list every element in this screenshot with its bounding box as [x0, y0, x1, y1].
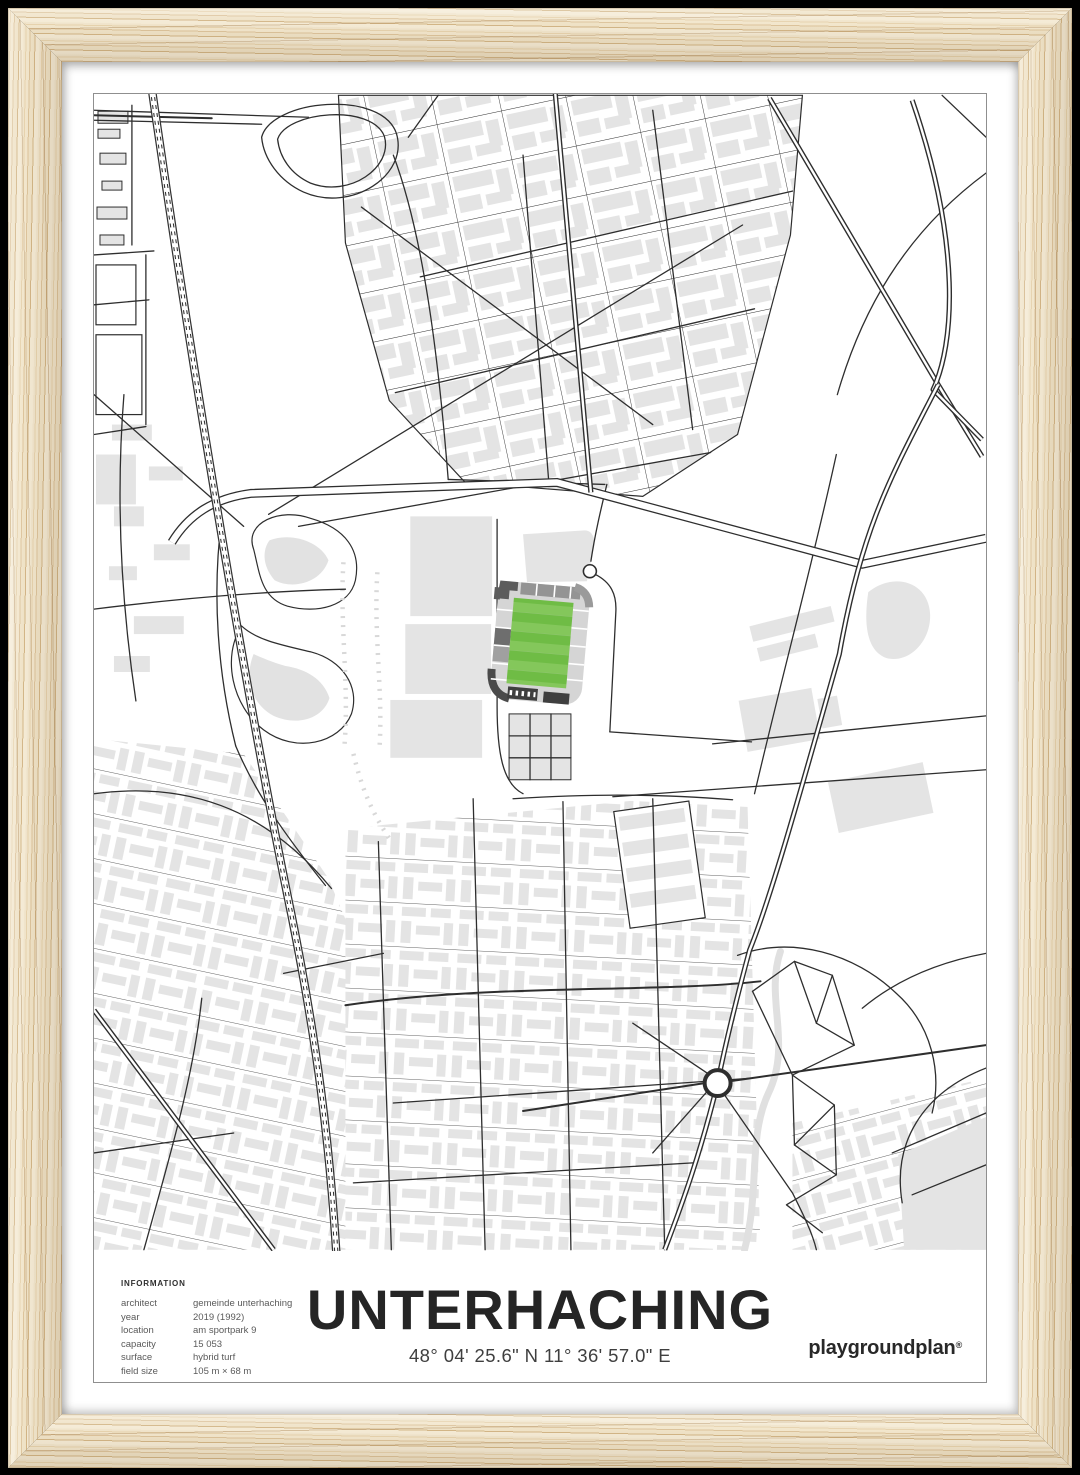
roundabout	[705, 1070, 731, 1096]
stadium-map-poster: INFORMATION architect gemeinde unterhach…	[93, 93, 987, 1383]
brand-logo: playgroundplan®	[808, 1337, 962, 1360]
framed-poster-photo: INFORMATION architect gemeinde unterhach…	[0, 0, 1080, 1475]
parking-lot-grid	[509, 714, 571, 780]
stadium	[485, 580, 591, 706]
poster-caption: INFORMATION architect gemeinde unterhach…	[94, 1251, 986, 1382]
parking-lot-rows	[614, 801, 705, 928]
road-node-circle	[583, 565, 596, 578]
map-svg	[94, 94, 986, 1251]
picture-frame-bottom	[8, 1414, 1072, 1468]
poster-title: UNTERHACHING	[94, 1282, 986, 1338]
picture-frame-left	[8, 8, 62, 1468]
picture-frame-top	[8, 8, 1072, 62]
registered-trademark-mark: ®	[956, 1340, 962, 1350]
city-map-graphic	[94, 94, 986, 1251]
picture-frame-right	[1018, 8, 1072, 1468]
stadium-pitch	[506, 598, 573, 689]
